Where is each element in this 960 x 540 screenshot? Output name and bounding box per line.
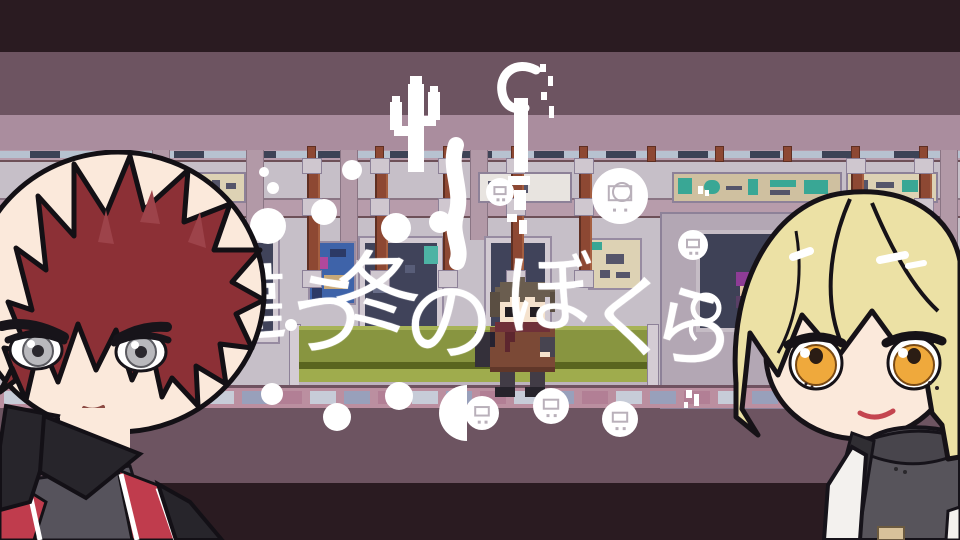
pole-bracket xyxy=(302,198,322,216)
floor-tile xyxy=(344,391,370,404)
floor-tile xyxy=(208,391,234,404)
floor-tile xyxy=(820,391,846,404)
pole-bracket xyxy=(846,158,866,174)
pole-bracket xyxy=(370,158,390,174)
pole-bracket xyxy=(302,270,322,288)
window-d xyxy=(858,238,948,342)
pole-bracket xyxy=(302,158,322,174)
strap-post xyxy=(715,146,724,162)
window-a xyxy=(182,238,278,342)
stanchion-pole xyxy=(579,160,592,288)
floor-tile xyxy=(616,391,642,404)
band-mid-bottom xyxy=(0,405,960,483)
pole-bracket xyxy=(438,270,458,288)
pole-bracket xyxy=(846,270,866,288)
floor-tile xyxy=(922,391,948,404)
floor-tile xyxy=(106,391,132,404)
pole-bracket xyxy=(574,158,594,174)
pole-bracket xyxy=(506,198,526,216)
floor-tile xyxy=(480,391,506,404)
strap-post xyxy=(783,146,792,162)
passenger-hair xyxy=(736,272,758,286)
pole-bracket xyxy=(370,198,390,216)
train-interior xyxy=(0,150,960,405)
train-floor xyxy=(0,385,960,408)
stanchion-pole xyxy=(307,160,320,288)
floor-tile xyxy=(446,391,472,404)
pole-bracket xyxy=(846,198,866,216)
band-mid-top xyxy=(0,52,960,115)
floor-tile xyxy=(38,391,64,404)
stanchion-pole xyxy=(851,160,864,288)
floor-tile xyxy=(412,391,438,404)
rail-segment xyxy=(822,151,852,158)
pole-bracket xyxy=(370,270,390,288)
rail-segment xyxy=(390,151,420,158)
pole-bracket xyxy=(438,198,458,216)
band-light xyxy=(0,115,960,150)
poster-beige xyxy=(588,238,642,290)
rail-segment xyxy=(750,151,780,158)
floor-tile xyxy=(242,391,268,404)
pole-bracket xyxy=(914,270,934,288)
floor-tile xyxy=(888,391,914,404)
strap-post xyxy=(647,146,656,162)
ad-poster-left xyxy=(166,172,246,203)
floor-tile xyxy=(718,391,744,404)
band-dark-bottom xyxy=(0,483,960,540)
wall-column xyxy=(246,150,264,240)
artwork-canvas: 違う冬のぼくら xyxy=(0,0,960,540)
floor-tile xyxy=(72,391,98,404)
green-bench xyxy=(293,326,655,390)
train-door xyxy=(660,212,794,409)
pole-bracket xyxy=(506,270,526,288)
pole-bracket xyxy=(574,270,594,288)
pole-bracket xyxy=(506,158,526,174)
floor-tile xyxy=(650,391,676,404)
floor-tile xyxy=(514,391,540,404)
band-dark-top xyxy=(0,0,960,52)
stanchion-pole xyxy=(443,160,456,288)
rail-segment xyxy=(678,151,708,158)
rail-segment xyxy=(174,151,204,158)
rail-segment xyxy=(606,151,636,158)
passenger-body xyxy=(736,296,758,308)
floor-tile xyxy=(276,391,302,404)
floor-tile xyxy=(548,391,574,404)
floor-tile xyxy=(684,391,710,404)
floor-tile xyxy=(854,391,880,404)
floor-tile xyxy=(174,391,200,404)
teal-sign xyxy=(424,246,438,264)
floor-tile xyxy=(140,391,166,404)
pole-bracket xyxy=(914,158,934,174)
floor-tile xyxy=(786,391,812,404)
door-button-panel xyxy=(818,238,836,249)
pole-bracket xyxy=(574,198,594,216)
pole-bracket xyxy=(438,158,458,174)
stanchion-pole xyxy=(511,160,524,288)
floor-tile xyxy=(310,391,336,404)
rail-segment xyxy=(534,151,564,158)
rail-segment xyxy=(30,151,60,158)
door-window xyxy=(696,230,786,332)
floor-tile xyxy=(582,391,608,404)
floor-tile xyxy=(378,391,404,404)
ad-poster-teal xyxy=(672,172,842,203)
pole-bracket xyxy=(914,198,934,216)
stanchion-pole xyxy=(919,160,932,288)
floor-tile xyxy=(4,391,30,404)
stanchion-pole xyxy=(375,160,388,288)
passenger-face xyxy=(740,286,754,296)
floor-tile xyxy=(752,391,778,404)
rail-segment xyxy=(102,151,132,158)
